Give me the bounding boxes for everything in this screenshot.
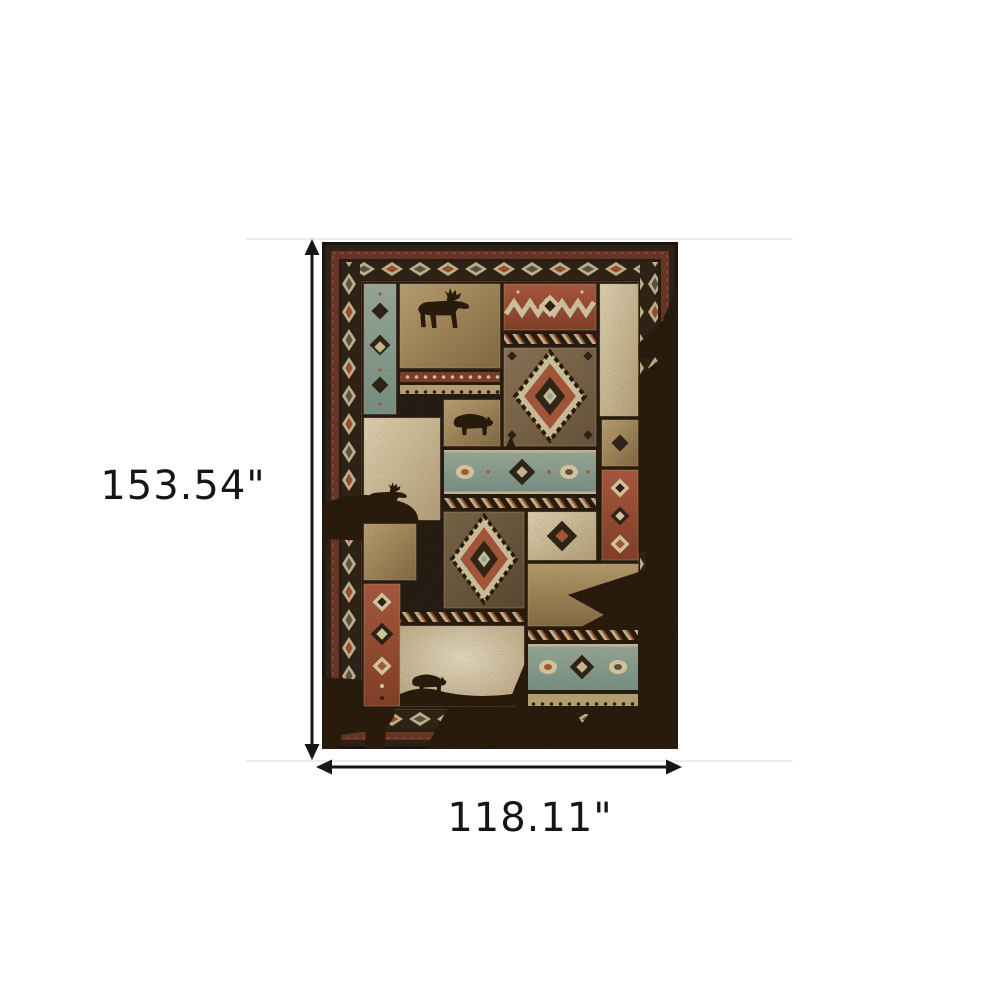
width-dimension-arrow <box>316 757 682 777</box>
rug-texture-overlay <box>322 242 678 749</box>
height-dimension-arrow <box>302 239 322 760</box>
photo-frame-top-edge <box>246 238 793 240</box>
arrowhead-up-icon <box>305 239 320 255</box>
area-rug-svg <box>322 242 678 749</box>
area-rug-image <box>322 242 678 749</box>
height-dimension-label: 153.54" <box>78 466 288 506</box>
arrowhead-left-icon <box>316 760 332 775</box>
arrowhead-right-icon <box>666 760 682 775</box>
product-dimension-diagram: 153.54" 118.11" <box>0 0 1000 1000</box>
width-dimension-label: 118.11" <box>418 798 642 838</box>
